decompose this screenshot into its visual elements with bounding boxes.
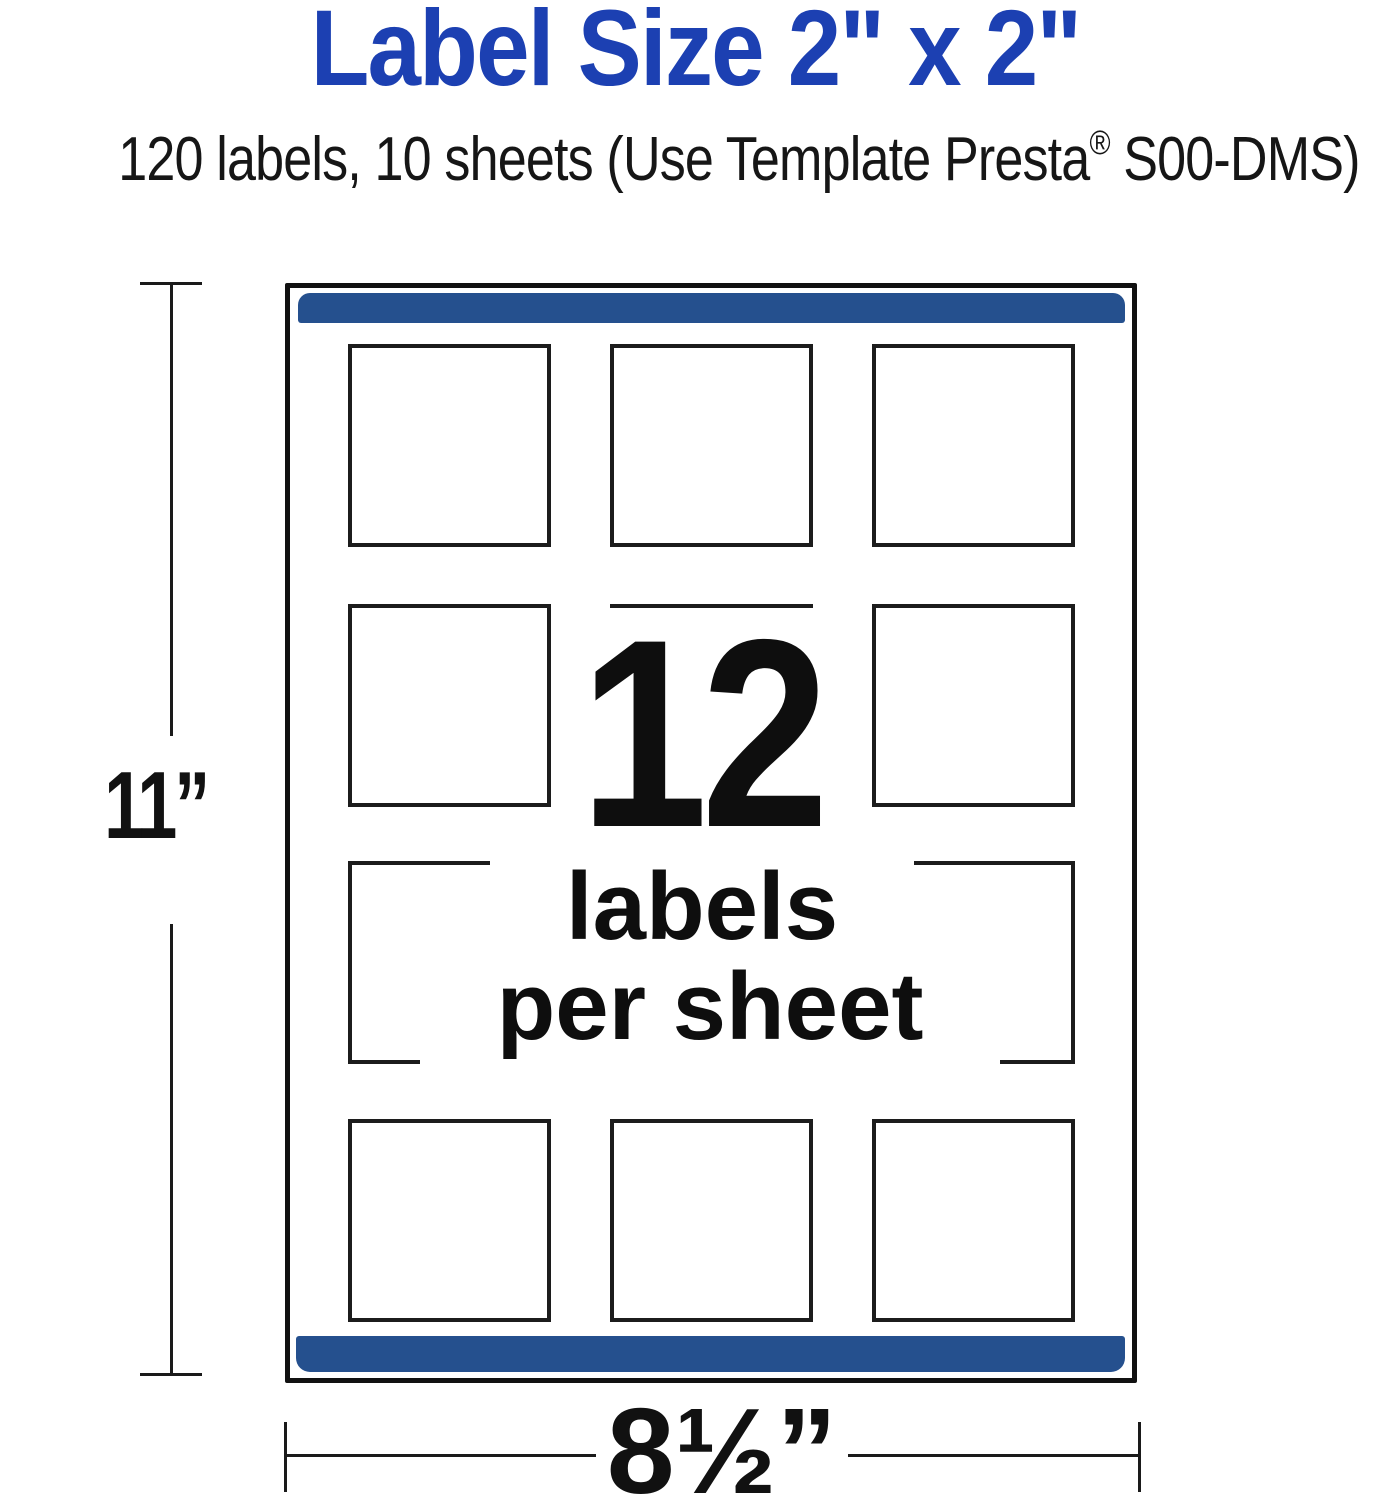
subtitle-post: S00-DMS) — [1110, 125, 1360, 194]
height-dimension-cap-bottom — [140, 1373, 202, 1376]
sheet-bottom-blue-bar — [296, 1336, 1125, 1372]
labels-per-sheet-count: 12 — [558, 608, 844, 860]
label-cell-r2c1 — [348, 604, 551, 807]
label-cell-r4c3 — [872, 1119, 1075, 1322]
label-cell-r4c2 — [610, 1119, 813, 1322]
label-cell-r1c1 — [348, 344, 551, 547]
label-cell-r4c1 — [348, 1119, 551, 1322]
height-dimension-line-lower — [170, 924, 173, 1376]
page-title-text: Label Size 2" x 2" — [310, 0, 1080, 102]
width-dimension-cap-right — [1138, 1422, 1141, 1492]
width-dimension-line-right — [848, 1454, 1140, 1457]
sheet-top-blue-bar — [298, 293, 1125, 323]
label-template-diagram: Label Size 2" x 2" 120 labels, 10 sheets… — [0, 0, 1390, 1500]
labels-word: labels — [490, 860, 914, 956]
registered-trademark-symbol: ® — [1089, 124, 1109, 162]
per-sheet-words: per sheet — [420, 956, 1000, 1074]
page-subtitle: 120 labels, 10 sheets (Use Template Pres… — [0, 126, 1390, 191]
width-dimension-cap-left — [284, 1422, 287, 1492]
width-dimension-line-left — [286, 1454, 596, 1457]
page-subtitle-text: 120 labels, 10 sheets (Use Template Pres… — [118, 126, 1359, 191]
height-dimension-line-upper — [170, 284, 173, 736]
width-dimension-label: 8½” — [596, 1390, 848, 1500]
height-dimension-cap-top — [140, 282, 202, 285]
label-cell-r1c2 — [610, 344, 813, 547]
label-cell-r1c3 — [872, 344, 1075, 547]
height-dimension-label: 11” — [86, 758, 226, 854]
page-title: Label Size 2" x 2" — [0, 0, 1390, 102]
subtitle-pre: 120 labels, 10 sheets (Use Template Pres… — [118, 125, 1089, 194]
label-cell-r2c3 — [872, 604, 1075, 807]
